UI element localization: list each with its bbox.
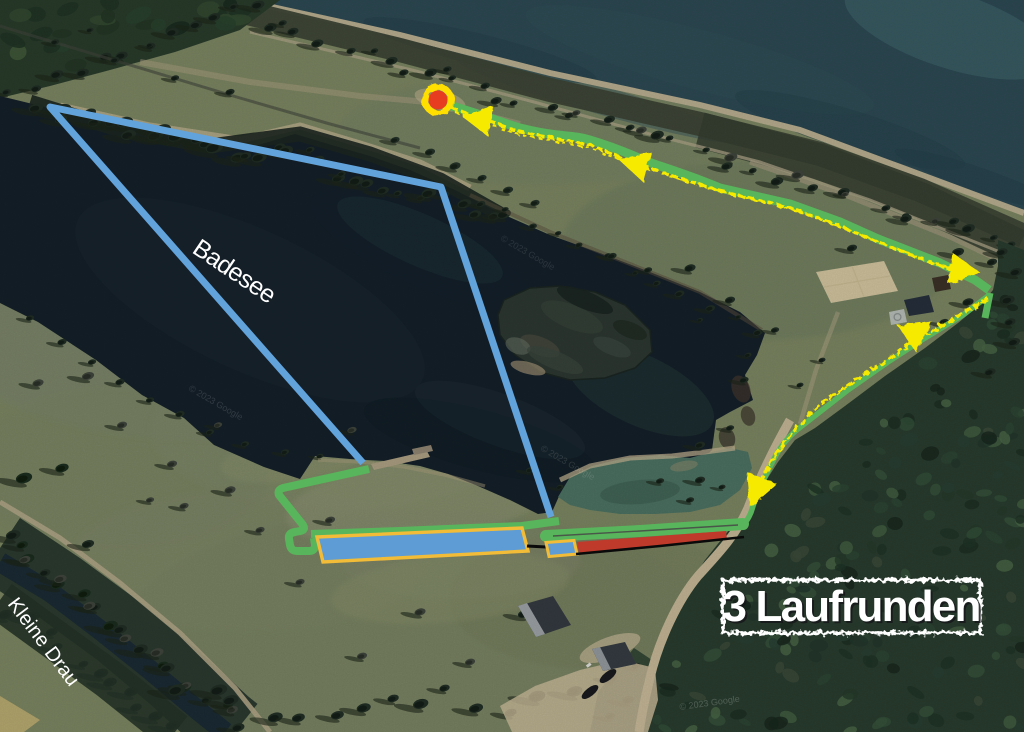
svg-text:3 Laufrunden: 3 Laufrunden — [722, 582, 979, 631]
